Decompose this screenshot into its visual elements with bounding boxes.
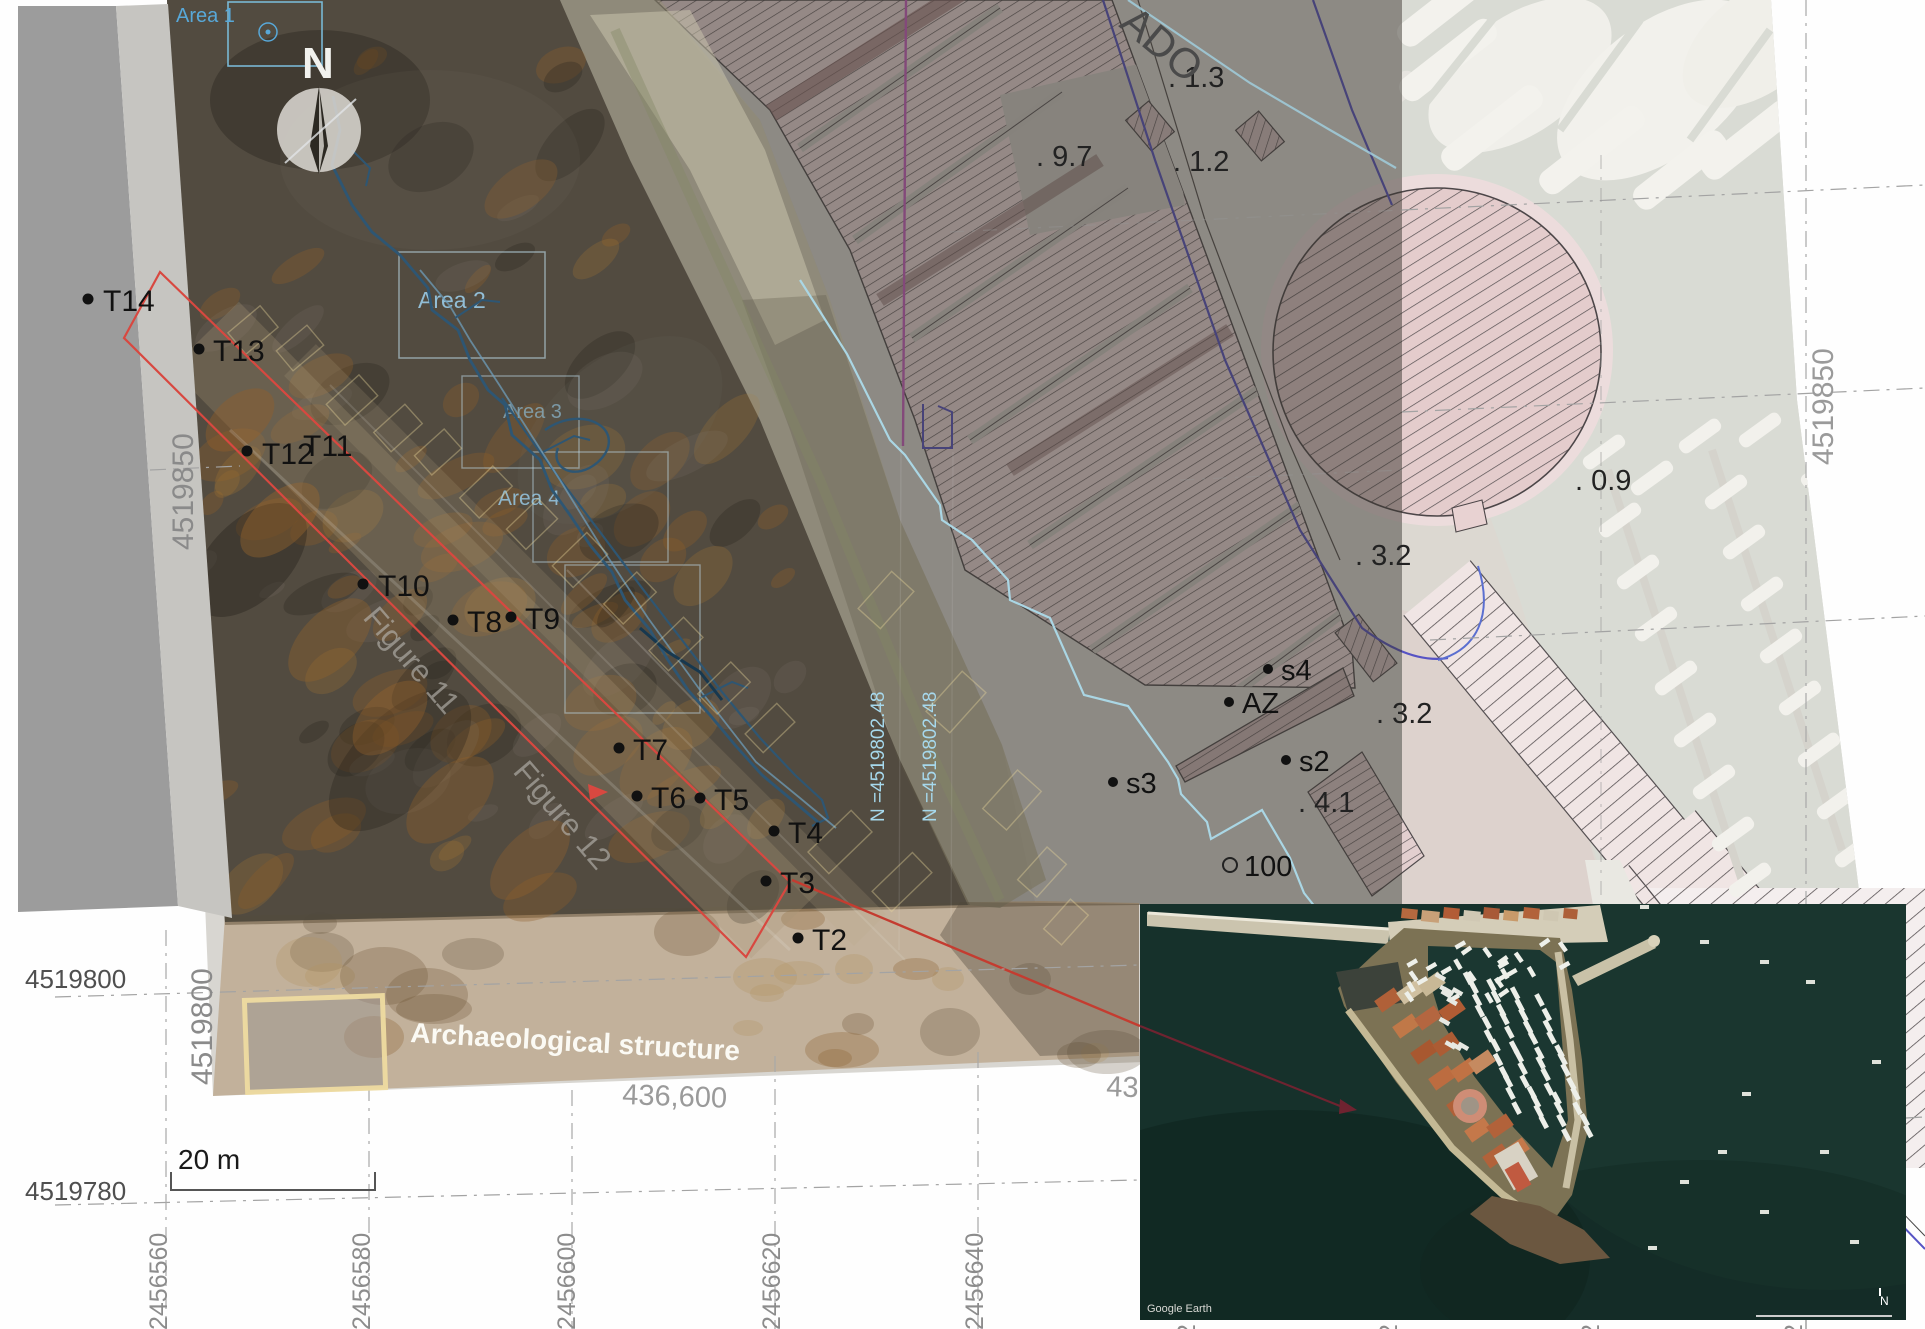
svg-text:T7: T7 bbox=[633, 734, 668, 767]
svg-text:T3: T3 bbox=[780, 867, 815, 900]
svg-text:4519800: 4519800 bbox=[25, 964, 126, 994]
svg-text:T6: T6 bbox=[651, 782, 686, 815]
svg-text:2: 2 bbox=[1173, 1324, 1201, 1329]
svg-text:T8: T8 bbox=[467, 606, 502, 639]
svg-text:. 3.2: . 3.2 bbox=[1355, 540, 1411, 572]
svg-text:. 3.2: . 3.2 bbox=[1376, 698, 1432, 730]
svg-text:20 m: 20 m bbox=[178, 1144, 240, 1175]
svg-text:. 4.1: . 4.1 bbox=[1298, 787, 1354, 819]
svg-text:s4: s4 bbox=[1281, 655, 1312, 687]
svg-text:Area 1: Area 1 bbox=[176, 5, 235, 27]
svg-text:T4: T4 bbox=[788, 817, 823, 850]
svg-text:2456560: 2456560 bbox=[145, 1233, 173, 1329]
svg-text:T13: T13 bbox=[213, 335, 265, 368]
svg-text:4519780: 4519780 bbox=[25, 1176, 126, 1206]
svg-text:2: 2 bbox=[1780, 1324, 1808, 1329]
svg-text:2456640: 2456640 bbox=[961, 1233, 989, 1329]
svg-text:2: 2 bbox=[1375, 1324, 1403, 1329]
svg-text:T10: T10 bbox=[378, 570, 430, 603]
svg-text:Google Earth: Google Earth bbox=[1147, 1303, 1212, 1315]
svg-text:T14: T14 bbox=[103, 285, 155, 318]
svg-text:2456620: 2456620 bbox=[758, 1233, 786, 1329]
svg-text:T5: T5 bbox=[714, 784, 749, 817]
svg-text:4519850: 4519850 bbox=[1807, 348, 1840, 465]
svg-text:. 9.7: . 9.7 bbox=[1036, 141, 1092, 173]
svg-text:T9: T9 bbox=[525, 603, 560, 636]
svg-text:. 0.9: . 0.9 bbox=[1575, 465, 1631, 497]
svg-text:. 1.2: . 1.2 bbox=[1173, 146, 1229, 178]
svg-text:436,600: 436,600 bbox=[622, 1079, 728, 1115]
svg-text:s2: s2 bbox=[1299, 746, 1330, 778]
svg-text:2456600: 2456600 bbox=[553, 1233, 581, 1329]
svg-text:N: N bbox=[302, 39, 334, 88]
svg-text:T2: T2 bbox=[812, 924, 847, 957]
svg-text:N =4519802.48: N =4519802.48 bbox=[920, 692, 941, 822]
svg-text:4519850: 4519850 bbox=[167, 433, 200, 550]
svg-text:2: 2 bbox=[1577, 1324, 1605, 1329]
svg-text:T11: T11 bbox=[303, 430, 352, 463]
svg-text:N: N bbox=[1880, 1294, 1889, 1308]
svg-text:N =4519802.48: N =4519802.48 bbox=[868, 692, 889, 822]
svg-text:2456580: 2456580 bbox=[348, 1233, 376, 1329]
svg-text:AZ: AZ bbox=[1242, 688, 1279, 720]
svg-text:100: 100 bbox=[1244, 851, 1292, 883]
svg-text:43: 43 bbox=[1106, 1071, 1139, 1104]
svg-text:4519800: 4519800 bbox=[186, 968, 219, 1085]
svg-text:s3: s3 bbox=[1126, 768, 1157, 800]
